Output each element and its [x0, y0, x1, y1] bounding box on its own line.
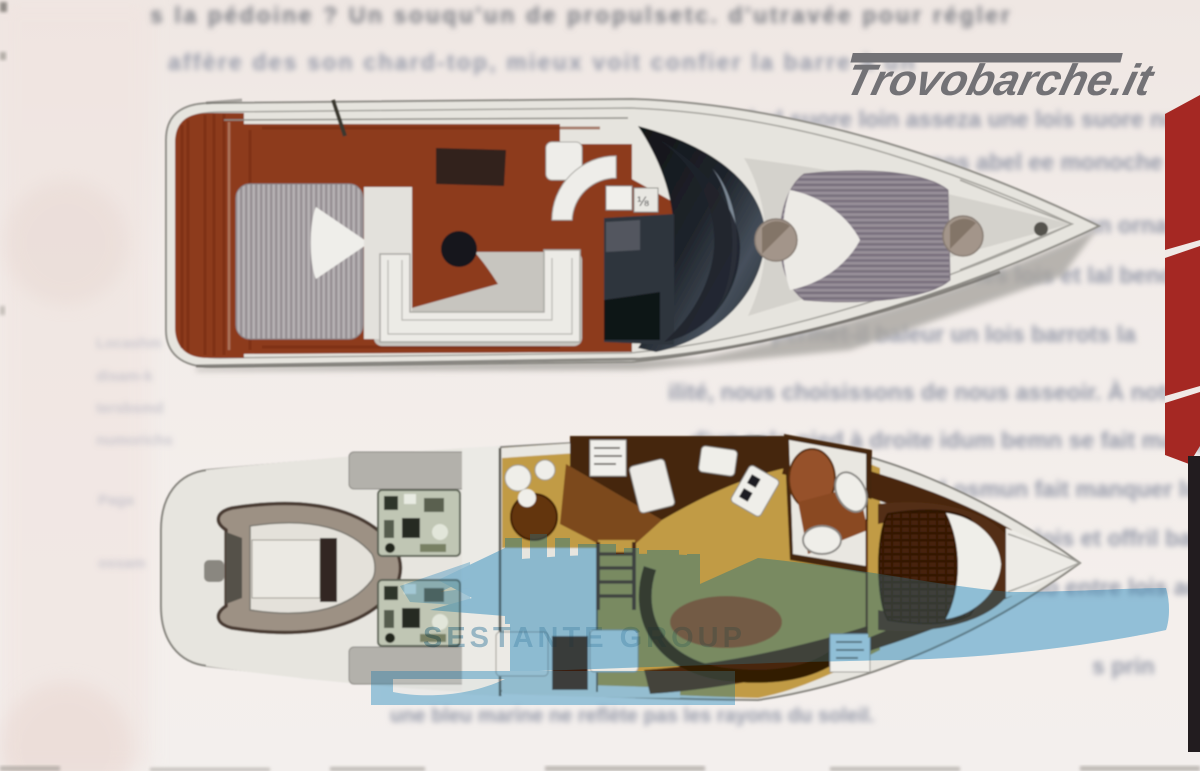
svg-text:une bleu marine ne reflète pas: une bleu marine ne reflète pas les rayon… [390, 705, 875, 727]
svg-text:Paga: Paga [98, 492, 135, 509]
svg-text:s la pédoine ? Un souqu'un de: s la pédoine ? Un souqu'un de propulsetc… [150, 2, 1012, 28]
svg-text:ilité, nous choisissons de nou: ilité, nous choisissons de nous asseoir.… [668, 378, 1200, 405]
svg-text:s prin: s prin [1092, 653, 1155, 679]
svg-text:numorichs: numorichs [96, 432, 173, 449]
svg-text:Locashm: Locashm [96, 335, 162, 352]
svg-text:Trovobarche.it: Trovobarche.it [841, 57, 1160, 105]
svg-text:⅛: ⅛ [637, 193, 649, 209]
svg-text:disam-k: disam-k [96, 368, 153, 385]
svg-text:tersbsmd: tersbsmd [96, 400, 164, 417]
svg-text:affère des son chard-top, mieu: affère des son chard-top, mieux voit con… [168, 49, 917, 75]
svg-text:ossam: ossam [98, 555, 146, 572]
